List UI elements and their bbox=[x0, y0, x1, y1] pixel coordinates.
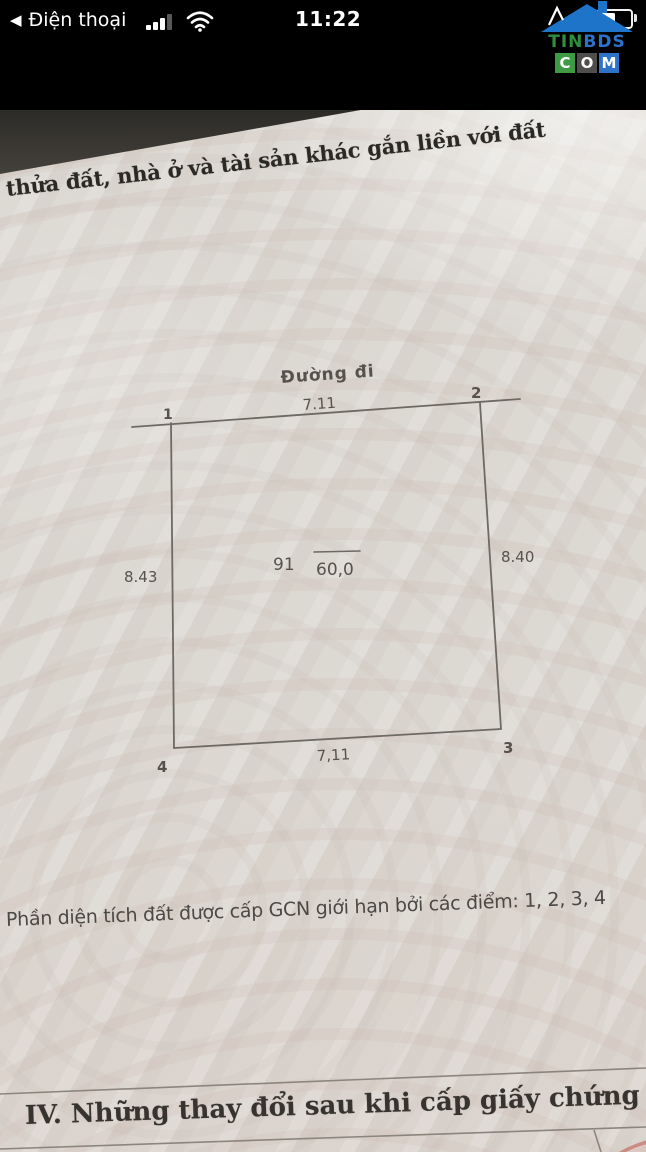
edge-bottom-line bbox=[174, 729, 501, 748]
phone-screenshot: thửa đất, nhà ở và tài sản khác gắn liền… bbox=[0, 0, 646, 1152]
watermark-letter-c: C bbox=[555, 53, 575, 73]
tinbds-watermark: TINBDS C O M bbox=[534, 1, 640, 73]
signal-bar bbox=[146, 25, 151, 30]
watermark-com: C O M bbox=[534, 53, 640, 73]
corner-1-label: 1 bbox=[163, 407, 173, 423]
section-iv-heading: IV. Những thay đổi sau khi cấp giấy chứn… bbox=[25, 1079, 646, 1131]
watermark-bds: BDS bbox=[583, 32, 625, 52]
back-chevron-icon: ◀ bbox=[10, 9, 22, 31]
edge-right-line bbox=[480, 403, 501, 729]
corner-3-label: 3 bbox=[503, 739, 513, 757]
edge-left-label: 8.43 bbox=[124, 568, 157, 586]
corner-4-label: 4 bbox=[157, 758, 167, 776]
red-stamp-arc bbox=[597, 1136, 646, 1152]
wifi-icon bbox=[186, 11, 214, 32]
document-photo: thửa đất, nhà ở và tài sản khác gắn liền… bbox=[0, 0, 646, 1152]
edge-right-label: 8.40 bbox=[501, 548, 534, 566]
area-fraction-line bbox=[314, 551, 360, 552]
plot-boundary-lines bbox=[132, 399, 520, 748]
edge-top-label: 7.11 bbox=[302, 394, 337, 414]
signal-bar bbox=[167, 14, 172, 30]
edge-left-line bbox=[171, 423, 174, 748]
status-time: 11:22 bbox=[295, 7, 361, 31]
watermark-letter-m: M bbox=[599, 53, 619, 73]
parcel-area-label: 60,0 bbox=[316, 560, 354, 580]
corner-2-label: 2 bbox=[471, 384, 481, 402]
cellular-signal-icon bbox=[146, 13, 180, 32]
signal-bar bbox=[153, 22, 158, 30]
watermark-tin: TIN bbox=[548, 32, 583, 52]
road-label: Đường đi bbox=[280, 361, 375, 388]
back-to-app-button[interactable]: ◀ Điện thoại bbox=[10, 9, 126, 31]
gcn-caption: Phần diện tích đất được cấp GCN giới hạn… bbox=[6, 887, 607, 931]
house-roof-icon bbox=[535, 1, 639, 33]
watermark-letter-o: O bbox=[577, 53, 597, 73]
back-app-label: Điện thoại bbox=[29, 9, 127, 31]
road-line bbox=[132, 399, 520, 427]
rule-below-heading bbox=[0, 1127, 646, 1149]
table-column-line bbox=[594, 1130, 601, 1152]
signal-bar bbox=[160, 18, 165, 30]
watermark-brand: TINBDS bbox=[534, 32, 640, 52]
edge-bottom-label: 7,11 bbox=[316, 745, 350, 765]
parcel-number-label: 91 bbox=[273, 555, 295, 575]
